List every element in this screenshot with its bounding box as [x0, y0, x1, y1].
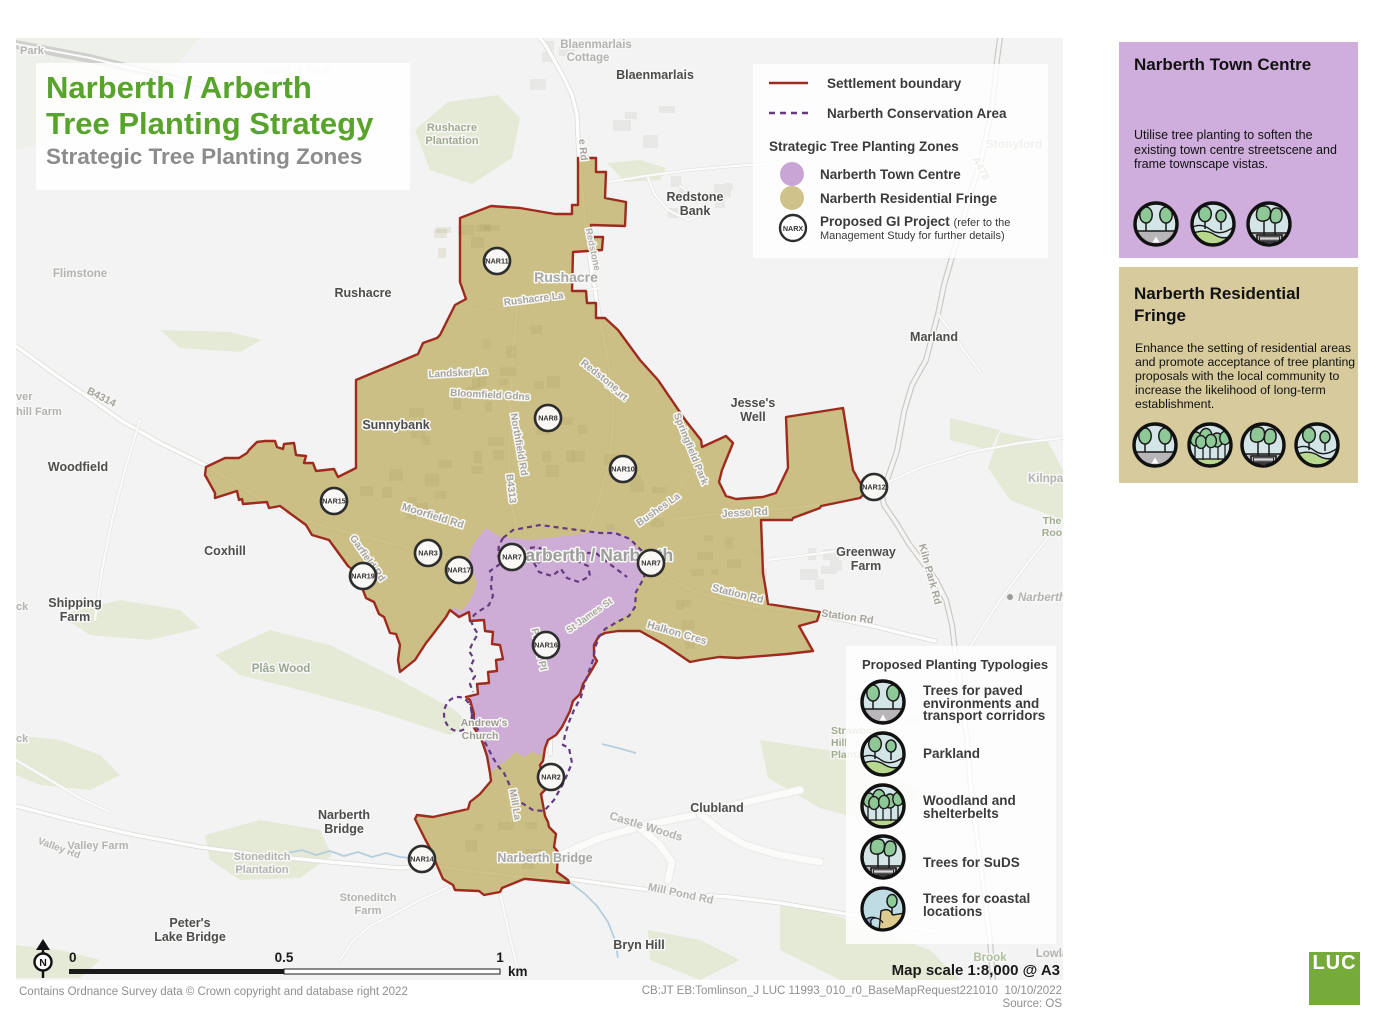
svg-text:The: The: [1043, 515, 1062, 527]
svg-text:Flimstone: Flimstone: [53, 268, 107, 280]
svg-text:Sunnybank: Sunnybank: [362, 418, 429, 432]
svg-text:Lowla: Lowla: [1036, 948, 1063, 960]
svg-text:NAR17: NAR17: [447, 566, 471, 575]
svg-text:Bank: Bank: [680, 204, 711, 218]
svg-text:Roo: Roo: [1042, 527, 1062, 539]
svg-text:Blaenmarlais: Blaenmarlais: [560, 39, 632, 51]
svg-text:1: 1: [496, 950, 504, 965]
svg-text:Stoneditch: Stoneditch: [340, 892, 397, 904]
svg-text:NAR7: NAR7: [641, 559, 661, 568]
svg-text:Valley Farm: Valley Farm: [67, 840, 128, 852]
svg-text:Jesse's: Jesse's: [731, 396, 776, 410]
svg-text:km: km: [508, 964, 528, 979]
svg-text:Blaenmarlais: Blaenmarlais: [616, 68, 694, 82]
svg-text:NAR14: NAR14: [410, 855, 434, 864]
svg-text:Stoneditch: Stoneditch: [234, 851, 291, 863]
svg-text:NAR8: NAR8: [538, 414, 558, 423]
svg-text:Redstone: Redstone: [667, 190, 724, 204]
svg-text:Bryn Hill: Bryn Hill: [613, 938, 664, 952]
svg-text:ck: ck: [16, 733, 29, 745]
svg-text:ck: ck: [16, 601, 29, 613]
svg-text:N: N: [39, 957, 47, 969]
svg-text:Farm: Farm: [355, 905, 382, 917]
svg-text:NAR12: NAR12: [862, 483, 886, 492]
svg-text:NAR15: NAR15: [322, 497, 346, 506]
svg-text:Narberth Bridge: Narberth Bridge: [497, 851, 592, 865]
svg-text:NAR3: NAR3: [418, 549, 438, 558]
svg-text:Rushacre: Rushacre: [335, 286, 392, 300]
svg-text:Shipping: Shipping: [48, 596, 101, 610]
svg-text:Rushacre: Rushacre: [534, 269, 598, 285]
svg-text:Park: Park: [20, 45, 45, 57]
svg-text:Coxhill: Coxhill: [204, 544, 246, 558]
svg-text:NAR7: NAR7: [502, 553, 522, 562]
svg-text:Peter's: Peter's: [169, 916, 210, 930]
svg-text:ver: ver: [16, 391, 33, 403]
svg-text:Jesse Rd: Jesse Rd: [721, 506, 768, 520]
svg-text:NAR16: NAR16: [534, 641, 558, 650]
svg-text:Cottage: Cottage: [567, 52, 610, 64]
svg-text:NARX: NARX: [783, 224, 804, 233]
svg-text:Kilnpar: Kilnpar: [1028, 473, 1063, 485]
svg-text:NAR10: NAR10: [611, 465, 635, 474]
svg-text:Hill: Hill: [831, 737, 847, 749]
svg-text:Greenway: Greenway: [836, 545, 896, 559]
svg-text:Farm: Farm: [60, 610, 91, 624]
svg-text:Farm: Farm: [851, 559, 882, 573]
svg-text:Plantation: Plantation: [425, 135, 478, 147]
svg-text:0: 0: [69, 950, 77, 965]
svg-text:hill Farm: hill Farm: [16, 406, 62, 418]
svg-text:Narberth: Narberth: [318, 808, 370, 822]
svg-text:0.5: 0.5: [275, 950, 294, 965]
svg-text:Bridge: Bridge: [324, 822, 364, 836]
svg-text:Map scale 1:8,000 @ A3: Map scale 1:8,000 @ A3: [892, 962, 1060, 979]
svg-text:Andrew's: Andrew's: [461, 717, 508, 729]
svg-text:Narberth: Narberth: [1018, 592, 1063, 604]
svg-text:NAR11: NAR11: [485, 257, 508, 266]
svg-text:Woodfield: Woodfield: [48, 460, 108, 474]
svg-text:Church: Church: [462, 730, 499, 742]
svg-text:Marland: Marland: [910, 330, 958, 344]
svg-text:Plantation: Plantation: [235, 864, 288, 876]
svg-text:Rushacre: Rushacre: [427, 122, 477, 134]
svg-text:Lake Bridge: Lake Bridge: [154, 930, 226, 944]
svg-text:Clubland: Clubland: [690, 801, 743, 815]
svg-text:NAR19: NAR19: [351, 572, 375, 581]
svg-text:Well: Well: [740, 410, 765, 424]
svg-text:e Rd: e Rd: [576, 139, 589, 162]
svg-text:NAR2: NAR2: [541, 773, 561, 782]
svg-text:Plâs Wood: Plâs Wood: [252, 663, 311, 675]
